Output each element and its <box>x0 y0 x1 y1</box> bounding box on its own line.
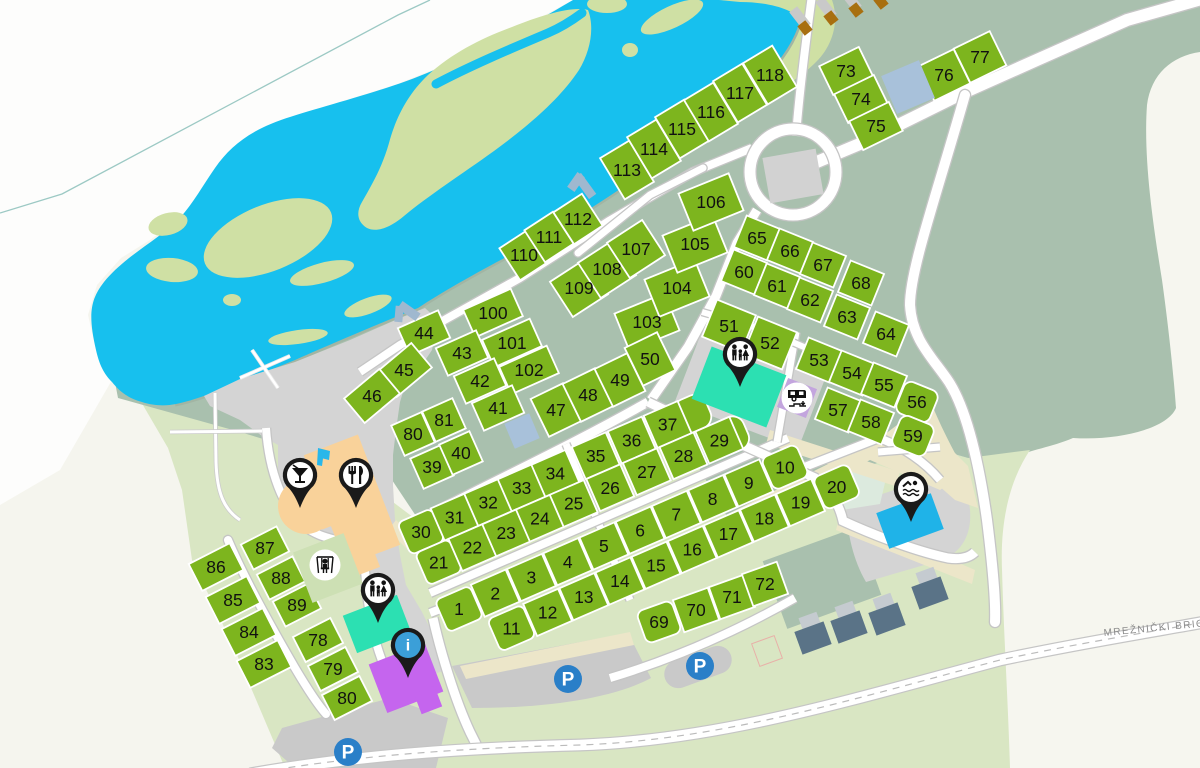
svg-text:80: 80 <box>403 424 423 444</box>
svg-text:P: P <box>694 657 707 678</box>
svg-text:112: 112 <box>564 209 592 229</box>
svg-text:115: 115 <box>668 119 696 139</box>
svg-text:75: 75 <box>866 116 885 136</box>
svg-text:103: 103 <box>632 312 661 332</box>
svg-text:113: 113 <box>613 160 641 180</box>
svg-text:84: 84 <box>239 622 259 642</box>
svg-text:71: 71 <box>722 587 741 607</box>
svg-text:4: 4 <box>563 552 573 572</box>
svg-text:79: 79 <box>323 659 342 679</box>
svg-text:31: 31 <box>445 507 464 527</box>
svg-text:26: 26 <box>600 478 619 498</box>
svg-text:40: 40 <box>451 443 471 463</box>
svg-text:11: 11 <box>502 618 520 638</box>
svg-text:62: 62 <box>800 290 819 310</box>
svg-text:14: 14 <box>610 571 630 591</box>
svg-text:9: 9 <box>744 473 754 493</box>
svg-text:65: 65 <box>747 228 766 248</box>
svg-text:70: 70 <box>686 600 706 620</box>
svg-text:72: 72 <box>755 574 774 594</box>
svg-text:114: 114 <box>640 139 668 159</box>
svg-text:17: 17 <box>719 524 738 544</box>
svg-text:41: 41 <box>488 398 507 418</box>
svg-text:3: 3 <box>527 568 537 588</box>
svg-text:58: 58 <box>861 412 880 432</box>
svg-text:22: 22 <box>463 538 482 558</box>
svg-text:64: 64 <box>876 324 896 344</box>
svg-text:32: 32 <box>478 493 497 513</box>
svg-text:15: 15 <box>646 555 665 575</box>
svg-text:111: 111 <box>536 227 563 247</box>
svg-text:52: 52 <box>760 333 779 353</box>
svg-text:35: 35 <box>586 446 605 466</box>
svg-text:24: 24 <box>530 508 550 528</box>
svg-text:86: 86 <box>206 557 225 577</box>
svg-text:69: 69 <box>649 612 668 632</box>
svg-text:25: 25 <box>564 494 583 514</box>
svg-text:81: 81 <box>434 410 453 430</box>
svg-text:21: 21 <box>429 552 448 572</box>
svg-text:49: 49 <box>610 370 629 390</box>
svg-text:100: 100 <box>478 303 507 323</box>
svg-text:56: 56 <box>907 392 926 412</box>
svg-text:45: 45 <box>394 360 413 380</box>
svg-text:7: 7 <box>671 505 681 525</box>
svg-text:39: 39 <box>422 457 441 477</box>
svg-text:37: 37 <box>658 415 677 435</box>
svg-text:87: 87 <box>255 538 274 558</box>
svg-text:73: 73 <box>836 61 855 81</box>
svg-text:12: 12 <box>538 603 557 623</box>
svg-text:54: 54 <box>842 363 862 383</box>
svg-text:116: 116 <box>697 102 725 122</box>
svg-text:8: 8 <box>708 489 718 509</box>
svg-text:106: 106 <box>696 192 725 212</box>
svg-text:67: 67 <box>813 255 832 275</box>
svg-text:27: 27 <box>637 462 656 482</box>
svg-text:28: 28 <box>674 446 693 466</box>
svg-text:34: 34 <box>546 464 566 484</box>
svg-text:48: 48 <box>578 385 597 405</box>
svg-text:18: 18 <box>755 508 774 528</box>
svg-text:78: 78 <box>308 630 327 650</box>
svg-text:63: 63 <box>837 307 856 327</box>
svg-text:i: i <box>406 638 410 655</box>
svg-text:6: 6 <box>635 520 645 540</box>
svg-text:50: 50 <box>640 349 660 369</box>
svg-text:104: 104 <box>662 278 691 298</box>
svg-text:83: 83 <box>254 654 273 674</box>
svg-text:74: 74 <box>851 89 871 109</box>
svg-text:101: 101 <box>497 333 526 353</box>
svg-text:55: 55 <box>874 375 893 395</box>
svg-text:59: 59 <box>903 426 922 446</box>
svg-text:51: 51 <box>719 316 738 336</box>
svg-text:46: 46 <box>362 386 381 406</box>
svg-text:80: 80 <box>337 688 357 708</box>
svg-text:47: 47 <box>546 400 565 420</box>
svg-text:16: 16 <box>682 540 701 560</box>
svg-text:117: 117 <box>726 83 754 103</box>
svg-text:68: 68 <box>851 273 870 293</box>
svg-text:10: 10 <box>775 457 795 477</box>
svg-text:108: 108 <box>592 259 621 279</box>
svg-text:13: 13 <box>574 587 593 607</box>
svg-text:85: 85 <box>223 590 242 610</box>
svg-text:88: 88 <box>271 568 290 588</box>
svg-text:36: 36 <box>622 430 641 450</box>
svg-text:102: 102 <box>514 360 543 380</box>
svg-text:118: 118 <box>756 65 784 85</box>
svg-text:33: 33 <box>512 478 531 498</box>
svg-text:107: 107 <box>621 239 650 259</box>
svg-text:76: 76 <box>934 65 953 85</box>
svg-text:30: 30 <box>411 522 431 542</box>
svg-text:43: 43 <box>452 343 471 363</box>
svg-text:P: P <box>342 743 355 764</box>
svg-text:20: 20 <box>827 477 847 497</box>
svg-text:61: 61 <box>767 276 786 296</box>
svg-text:110: 110 <box>510 245 538 265</box>
svg-text:23: 23 <box>496 523 515 543</box>
svg-text:89: 89 <box>287 595 306 615</box>
svg-text:5: 5 <box>599 536 609 556</box>
svg-text:109: 109 <box>564 278 593 298</box>
svg-text:19: 19 <box>791 493 810 513</box>
svg-text:105: 105 <box>680 234 709 254</box>
svg-text:44: 44 <box>414 323 434 343</box>
svg-text:66: 66 <box>780 241 799 261</box>
svg-text:42: 42 <box>470 371 489 391</box>
svg-text:29: 29 <box>710 430 729 450</box>
svg-text:57: 57 <box>828 400 847 420</box>
svg-text:60: 60 <box>734 262 754 282</box>
svg-text:2: 2 <box>490 583 500 603</box>
svg-text:53: 53 <box>809 350 828 370</box>
svg-text:77: 77 <box>970 47 989 67</box>
svg-text:P: P <box>562 670 575 691</box>
svg-text:1: 1 <box>454 599 464 619</box>
